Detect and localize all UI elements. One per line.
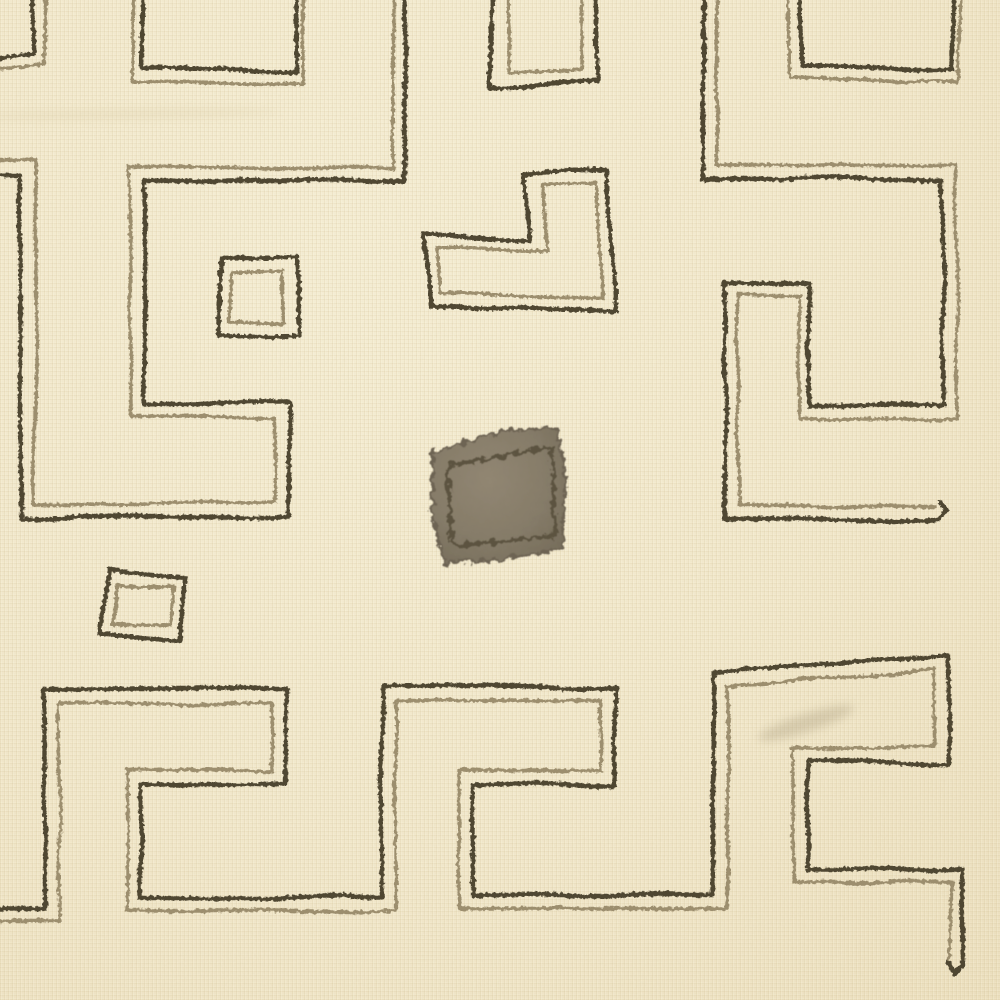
textile-artwork bbox=[0, 0, 1000, 1000]
kuba-textile-photo bbox=[0, 0, 1000, 1000]
